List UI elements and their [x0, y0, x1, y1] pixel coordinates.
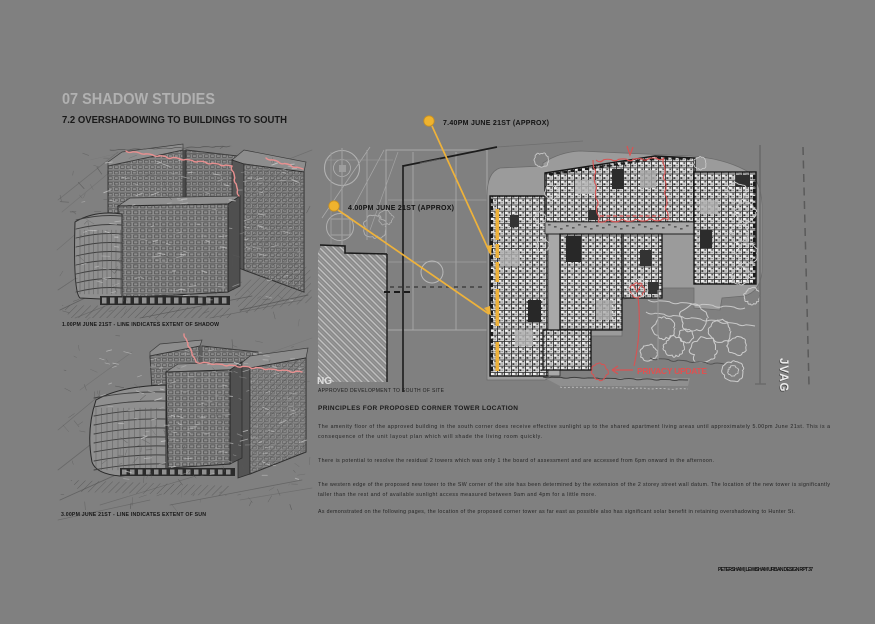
svg-text:07 SHADOW STUDIES: 07 SHADOW STUDIES — [62, 91, 215, 108]
svg-text:PRINCIPLES FOR PROPOSED CORNER: PRINCIPLES FOR PROPOSED CORNER TOWER LOC… — [318, 405, 518, 412]
svg-text:As demonstrated on the followi: As demonstrated on the following pages, … — [318, 509, 795, 515]
svg-text:4.00PM JUNE 21ST (APPROX): 4.00PM JUNE 21ST (APPROX) — [348, 205, 454, 212]
svg-text:3.00PM JUNE 21ST - LINE INDICA: 3.00PM JUNE 21ST - LINE INDICATES EXTENT… — [61, 512, 206, 518]
svg-text:There is potential to resolve: There is potential to resolve the residu… — [318, 458, 714, 464]
svg-text:The western edge of the propos: The western edge of the proposed new tow… — [318, 482, 830, 488]
svg-text:APPROVED DEVELOPMENT TO SOUTH: APPROVED DEVELOPMENT TO SOUTH OF SITE — [318, 388, 445, 394]
svg-text:NG: NG — [317, 376, 332, 387]
svg-text:taller than the rest and of av: taller than the rest and of available su… — [318, 492, 596, 498]
svg-text:PETERSHAM | LEWISHAM URBAN DES: PETERSHAM | LEWISHAM URBAN DESIGN RPT 37 — [718, 567, 813, 573]
svg-text:1.00PM JUNE 21ST - LINE INDICA: 1.00PM JUNE 21ST - LINE INDICATES EXTENT… — [62, 322, 219, 328]
svg-text:The amenity floor of the appro: The amenity floor of the approved buildi… — [318, 424, 830, 430]
svg-text:7.2 OVERSHADOWING TO BUILDINGS: 7.2 OVERSHADOWING TO BUILDINGS TO SOUTH — [62, 114, 287, 126]
svg-text:JVAG: JVAG — [777, 358, 789, 392]
svg-text:7.40PM JUNE 21ST (APPROX): 7.40PM JUNE 21ST (APPROX) — [443, 120, 549, 127]
svg-text:consequence of the unit layout: consequence of the unit layout plan whic… — [318, 434, 542, 440]
svg-text:PRIVACY UPDATE: PRIVACY UPDATE — [637, 366, 707, 376]
